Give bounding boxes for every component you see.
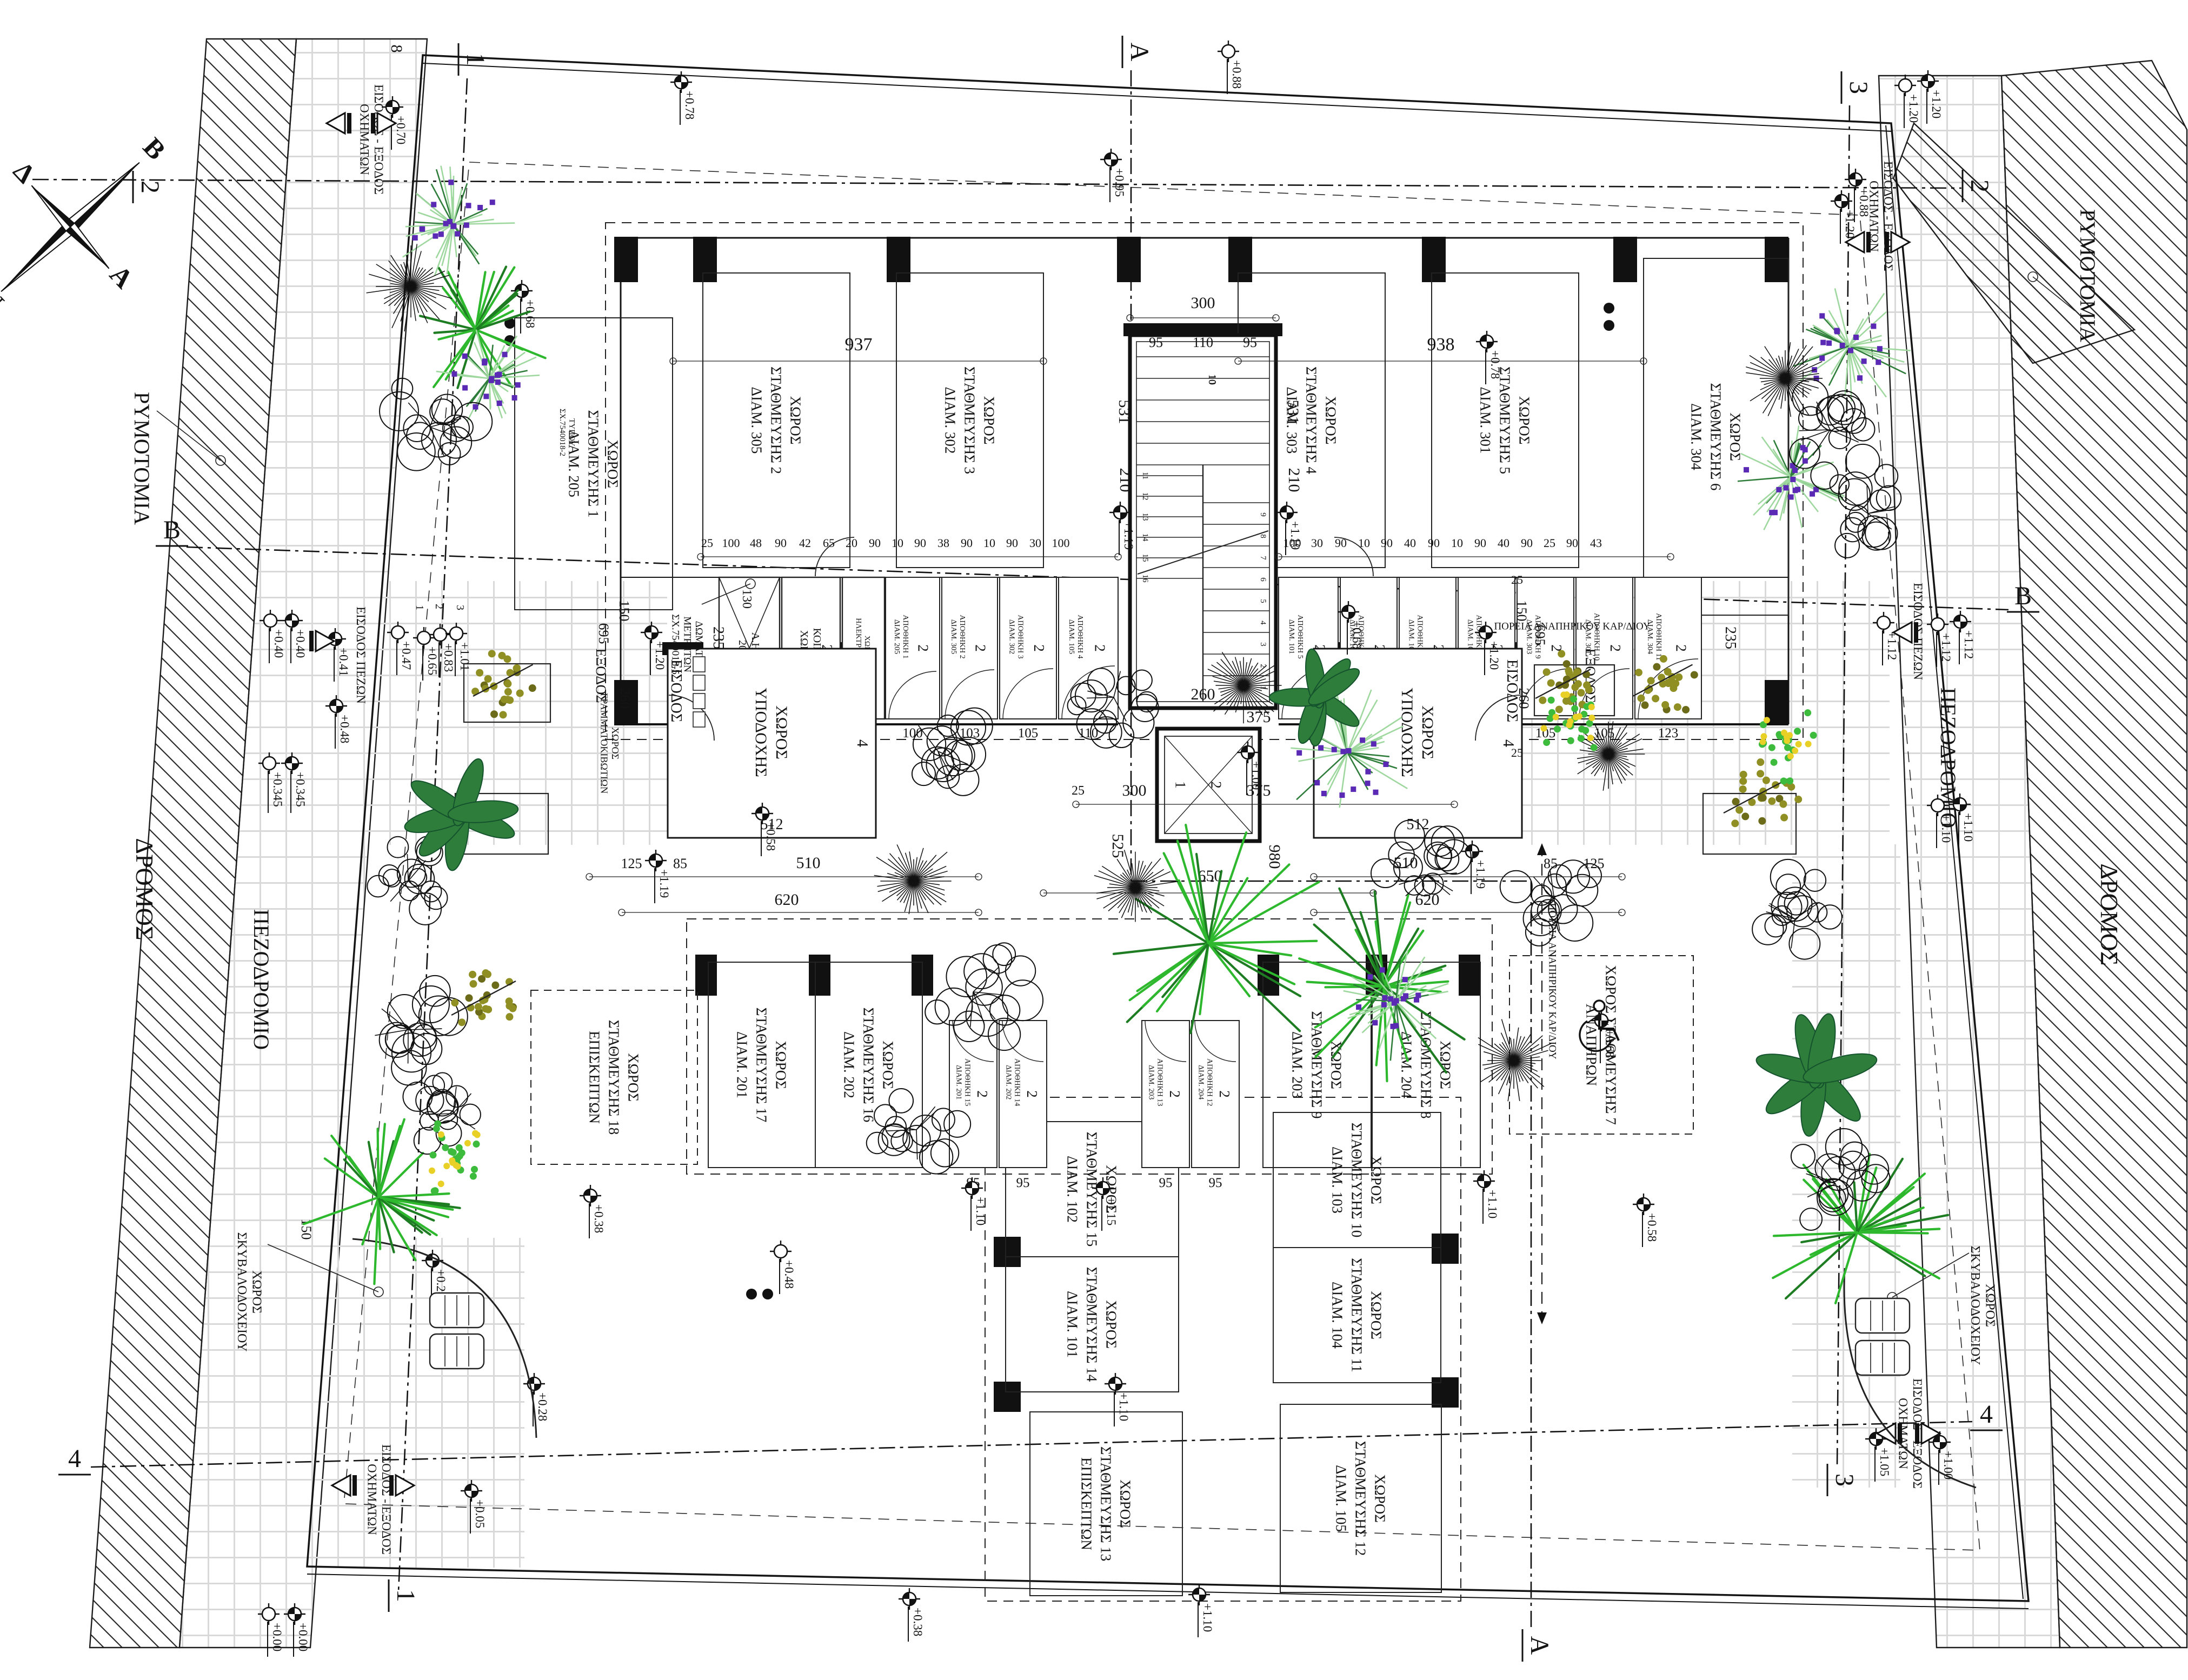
tree-canopy-blob (1123, 707, 1154, 738)
storage-label-line: ΔΙΑΜ. 204 (1197, 1065, 1205, 1099)
burst-ray (1764, 477, 1791, 530)
storage-depth: 2 (915, 644, 932, 652)
flower-dot (431, 202, 436, 207)
storage-label-line: ΔΙΑΜ. 202 (1005, 1065, 1013, 1099)
annotation-label: ΕΙΣΟΔΟΣ (668, 659, 684, 722)
storage-label-line: ΔΙΑΜ. 105 (1067, 619, 1075, 654)
garbage-bin-icon (430, 1334, 484, 1369)
wall-column (1459, 955, 1480, 996)
olive-dot (1647, 677, 1655, 684)
section-marker-2: 2 (1965, 179, 1994, 192)
storage-label: ΑΠΟΘΗΚΗ 15ΔΙΑΜ. 201 (955, 1058, 972, 1106)
level-value: +1.12 (1939, 633, 1953, 662)
flower-dot (1840, 343, 1845, 348)
yellow-dot (1792, 748, 1798, 754)
dim-text: 510 (796, 854, 821, 872)
level-value: +0.345 (271, 772, 284, 807)
green-dot (456, 1152, 463, 1159)
storage-label-line: ΑΠΟΘΗΚΗ 14 (1013, 1058, 1021, 1106)
dim-text: 375 (1247, 708, 1271, 726)
storage-label-line: ΑΠΟΘΗΚΗ 1 (901, 615, 909, 658)
flower-dot (1332, 747, 1337, 752)
level-value: +1.10 (1961, 813, 1975, 842)
tree-canopy-blob (430, 998, 468, 1036)
parking-stall-label-line: ΣΤΑΘΜΕΥΣΗΣ 17 (754, 1008, 770, 1123)
tree-star (1094, 850, 1178, 922)
flower-dot (451, 371, 457, 377)
olive-dot (1641, 702, 1649, 709)
storage-label: ΑΠΟΘΗΚΗ 11ΔΙΑΜ. 304 (1646, 613, 1662, 661)
annotation-text-line: ΔΡΟΜΟΣ (131, 838, 158, 940)
storage-depth-line: 2 (1216, 1090, 1233, 1098)
flower-dot (1382, 995, 1387, 1001)
spot-level: +0.88 (1218, 41, 1243, 94)
level-quadrant (675, 76, 681, 82)
burst-ray (1753, 477, 1791, 515)
dim-text: 90 (1521, 536, 1533, 550)
storage-label-line: ΔΙΑΜ. 302 (1008, 619, 1016, 654)
tree-branch (390, 881, 408, 902)
level-quadrant (1835, 195, 1841, 201)
section-marker-4: 4 (1980, 1400, 1993, 1429)
bollard-dot (746, 1289, 757, 1299)
parking-stall-label-line: ΕΠΙΣΚΕΠΤΩΝ (587, 1031, 603, 1124)
tree-canopy-blob (1405, 876, 1424, 895)
wall-column (614, 237, 638, 282)
annotation-text-line: ΟΧΗΜΑΤΩΝ (358, 104, 371, 175)
green-dot (470, 1172, 477, 1179)
flower-dot (477, 205, 483, 210)
flower-dot (1314, 780, 1320, 785)
dim-text: 695 (596, 623, 611, 644)
spot-level: +0.38 (580, 1185, 606, 1238)
parking-stall-label: ΧΩΡΟΣΣΤΑΘΜΕΥΣΗΣ 18ΕΠΙΣΚΕΠΤΩΝ (587, 1020, 642, 1135)
annotation-label: ΕΙΣΟΔΟΣ (1504, 659, 1520, 722)
parking-stall-label-line: ΣΤΑΘΜΕΥΣΗΣ 11 (1349, 1258, 1365, 1372)
annotation-text-line: ΠΕΖΟΔΡΟΜΙΟ (249, 909, 274, 1050)
green-dot (456, 1144, 463, 1151)
green-dot (1768, 744, 1775, 751)
parking-stall-label-line: ΕΠΙΣΚΕΠΤΩΝ (1079, 1457, 1095, 1550)
level-quadrant (1841, 201, 1848, 208)
palm-frond (1208, 882, 1319, 943)
level-quadrant (1849, 173, 1856, 179)
olive-dot (1583, 682, 1591, 689)
dim-text: 525 (1109, 834, 1127, 858)
green-dot (1567, 737, 1574, 744)
flower-dot (438, 231, 444, 237)
level-circle (1222, 45, 1235, 58)
olive-dot (1758, 817, 1766, 825)
level-value: +0.68 (1350, 621, 1364, 649)
parking-stall-label-line: ΔΙΑΜ. 304 (1688, 403, 1705, 470)
dim-text: 10 (892, 536, 903, 550)
parking-stall-6: ΧΩΡΟΣΣΤΑΘΜΕΥΣΗΣ 6ΔΙΑΜ. 304 (1644, 258, 1788, 615)
yellow-dot (1588, 704, 1595, 710)
level-label-group: +1.10 (1198, 1602, 1214, 1637)
palm-frond (457, 330, 476, 388)
parking-stall-label-line: ΔΙΑΜ. 103 (1329, 1146, 1346, 1214)
dim-text: 1 (414, 605, 425, 610)
storage-width: 95 (1209, 1176, 1222, 1190)
tree-canopy-blob (1817, 396, 1853, 431)
storage-outline (1635, 577, 1701, 719)
yellow-dot (1760, 733, 1767, 739)
flower-dot (1857, 375, 1863, 381)
tree-canopy-blob (397, 433, 435, 471)
level-label-group: +0.58 (1642, 1212, 1659, 1247)
tree-canopy-blob (983, 945, 1012, 974)
level-value: +0.83 (442, 643, 455, 672)
annotation-text-line: ΡΥΜΟΤΟΜΙΑ (130, 392, 154, 525)
parking-stall-label-line: ΧΩΡΟΣ (1323, 396, 1339, 445)
annotation-label: ΠΟΡΕΙΑ ΑΝΑΠΗΡΙΚΟΥ ΚΑΡ/ΔΙΟΥ (1494, 621, 1650, 632)
flower-dot (1848, 348, 1853, 353)
dim-text: 90 (961, 536, 973, 550)
shrub-ray (1514, 1061, 1544, 1086)
flower-dot (1826, 341, 1832, 346)
flower-dot (1834, 328, 1839, 333)
storage-depth-line: 2 (1031, 644, 1047, 652)
annotation-label: ΕΙΣΟΔΟΣ - ΕΞΟΔΟΣΟΧΗΜΑΤΩΝ (1867, 161, 1895, 271)
parking-stall-label-line: ΔΙΑΜ. 201 (734, 1031, 750, 1098)
reception-dim-h: 4 (854, 739, 870, 747)
storage-label: ΑΠΟΘΗΚΗ 3ΔΙΑΜ. 302 (1008, 615, 1025, 658)
dim-text: 90 (1474, 536, 1486, 550)
palm-frond (378, 1194, 449, 1197)
level-value: +1.20 (1487, 641, 1501, 670)
olive-dot (1768, 797, 1775, 805)
level-quadrant (1478, 1175, 1484, 1181)
level-value: +0.70 (394, 116, 408, 144)
parking-stall-label-line: ΔΙΑΜ. 203 (1289, 1031, 1306, 1098)
olive-dot (1741, 812, 1749, 820)
flower-dot (1340, 749, 1346, 754)
dim-text: 10 (1451, 536, 1463, 550)
annotation-text-line: ΤΥΠΟΥ (567, 418, 576, 446)
dim-text: 300 (1191, 294, 1215, 312)
parking-stall-2: ΧΩΡΟΣΣΤΑΘΜΕΥΣΗΣ 2ΔΙΑΜ. 305 (703, 273, 850, 568)
plot-boundary-offset (423, 63, 1891, 131)
yellow-dot (464, 1140, 471, 1146)
dim-text: 25 (1511, 573, 1523, 586)
olive-dot (465, 994, 473, 1002)
needle-s (1, 227, 75, 297)
olive-dot (1691, 671, 1698, 678)
parking-stall-label-line: ΧΩΡΟΣ (880, 1041, 896, 1089)
green-dot (1578, 735, 1585, 742)
dim-text: 980 (1266, 845, 1283, 869)
tree-purple (1738, 425, 1845, 530)
green-dot (1571, 705, 1578, 712)
storage-label-line: ΔΙΑΜ. 203 (1147, 1065, 1155, 1099)
tree-canopy-blob (1811, 462, 1838, 489)
level-value: +1.20 (1907, 94, 1920, 123)
flower-dot (1792, 468, 1798, 473)
parking-stall-label-line: ΧΩΡΟΣ (1118, 1479, 1134, 1528)
tree-canopy-blob (920, 1141, 953, 1174)
flower-dot (455, 231, 460, 237)
flower-dot (1321, 791, 1327, 796)
olive-dot (1664, 668, 1672, 676)
level-value: +1.05 (1878, 1448, 1891, 1476)
annotation-text-line: ΕΙΣΟΔΟΣ - ΕΞΟΔΟΣ (372, 84, 385, 195)
dim-text: 260 (617, 688, 633, 709)
flower-dot (1861, 358, 1867, 364)
flower-dot (1383, 762, 1388, 767)
green-dot (1780, 777, 1787, 784)
olive-dot (476, 669, 483, 677)
parking-stall-17: ΧΩΡΟΣΣΤΑΘΜΕΥΣΗΣ 17ΔΙΑΜ. 201 (708, 962, 815, 1168)
yellow-dot (443, 1163, 450, 1169)
bollard-dot (1604, 320, 1614, 331)
flower-dot (1318, 745, 1324, 751)
dim-text: 235 (1722, 626, 1739, 649)
green-dot (432, 1187, 439, 1194)
dim-text: 43 (1590, 536, 1602, 550)
tree-canopy-blob (1840, 518, 1864, 542)
level-value: +1.20 (653, 641, 667, 670)
olive-dot (1558, 650, 1565, 658)
annotation-text: ΡΥΜΟΤΟΜΙΑ (130, 392, 154, 525)
level-value: +0.38 (911, 1608, 925, 1636)
yellow-dot (1764, 717, 1770, 723)
flower-dot (420, 226, 425, 232)
level-quadrant (1856, 179, 1862, 186)
parking-stall-outline (1509, 956, 1693, 1134)
flower-dot (1372, 1020, 1378, 1025)
section-marker-4: 4 (68, 1444, 81, 1473)
storage-label-line: ΑΠΟΘΗΚΗ 13 (1156, 1058, 1164, 1106)
level-value: +0.41 (337, 648, 350, 676)
olive-dot (1652, 695, 1659, 702)
olive-dot (491, 982, 499, 989)
level-value: +1.19 (1288, 521, 1302, 550)
green-dot (430, 1151, 437, 1158)
spot-level: +0.58 (1633, 1194, 1659, 1247)
upper-floor-overhang-dashed (985, 1097, 1461, 1601)
yellow-dot (449, 1157, 455, 1164)
elevator-shaft: 12 (1157, 729, 1260, 841)
mailbox-unit (693, 694, 705, 709)
storage-width: 123 (1658, 726, 1679, 741)
parking-stall-label: ΧΩΡΟΣΣΤΑΘΜΕΥΣΗΣ 11ΔΙΑΜ. 104 (1329, 1258, 1385, 1372)
level-quadrant (649, 854, 656, 861)
olive-dot (475, 1003, 482, 1010)
elevator-dim-line: 1 (1173, 781, 1189, 789)
level-value: +0.40 (294, 629, 307, 658)
tree-palm (1114, 825, 1319, 1033)
parking-stall-11: ΧΩΡΟΣΣΤΑΘΜΕΥΣΗΣ 11ΔΙΑΜ. 104 (1273, 1248, 1441, 1383)
level-quadrant (522, 291, 528, 297)
dim-text: 85 (673, 856, 687, 871)
spot-level: +1.10 (961, 1177, 987, 1231)
dim-text: 150 (616, 601, 632, 622)
storage-label-line: ΔΙΑΜ. 305 (949, 619, 957, 654)
elevator-dim: 2 (1208, 781, 1225, 789)
olive-dot (451, 999, 458, 1006)
storage-room: ΑΠΟΘΗΚΗ 4ΔΙΑΜ. 1052110 (1059, 577, 1118, 741)
olive-dot (1565, 667, 1572, 675)
yellow-dot (1567, 718, 1574, 725)
needle-e (66, 227, 109, 272)
olive-dot (1759, 794, 1767, 802)
dim-text: 95 (1149, 335, 1163, 350)
dim-text: 10 (983, 536, 995, 550)
yellow-dot (1576, 713, 1582, 719)
parking-stall-5: ΧΩΡΟΣΣΤΑΘΜΕΥΣΗΣ 5ΔΙΑΜ. 301 (1432, 273, 1579, 568)
dim-text: 38 (937, 536, 949, 550)
annotation-text: ΡΥΜΟΤΟΜΙΑ (2076, 209, 2100, 342)
garbage-bin-icon (430, 1293, 484, 1328)
tree-branch (453, 1114, 475, 1129)
level-label-group: +0.38 (908, 1606, 925, 1642)
yellow-dot (438, 1181, 444, 1187)
flower-dot (1373, 790, 1378, 795)
wall-column (1117, 237, 1141, 282)
wall-column (809, 955, 830, 996)
parking-stall-label-line: ΧΩΡΟΣ (1368, 1156, 1385, 1204)
dim-text: 40 (1498, 536, 1509, 550)
flower-dot (495, 379, 501, 385)
tree-canopy-blob (1544, 874, 1566, 896)
level-value: +0.88 (1230, 60, 1243, 89)
storage-depth-line: 2 (1024, 1090, 1040, 1098)
storage-label-line: ΑΠΟΘΗΚΗ 15 (963, 1058, 972, 1106)
wall-column (887, 237, 910, 282)
yellow-dot (1805, 741, 1812, 747)
olive-dot (1682, 706, 1690, 714)
flower-dot (462, 385, 468, 391)
olive-dot (458, 1018, 465, 1026)
dim-text: 125 (621, 856, 642, 871)
compass-letter-east: Α (104, 259, 139, 294)
parking-stall-label-line: ΔΙΑΜ. 302 (942, 387, 959, 454)
annotation-text-line: ΠΟΡΕΙΑ ΑΝΑΠΗΡΙΚΟΥ ΚΑΡ/ΔΙΟΥ (1494, 621, 1650, 632)
wall-column (695, 955, 717, 996)
yellow-dot (1540, 725, 1547, 731)
storage-width: 105 (1018, 726, 1039, 741)
storage-depth: 2 (1607, 644, 1624, 652)
flower-dot (1356, 1004, 1361, 1010)
parking-stall-label: ΧΩΡΟΣΣΤΑΘΜΕΥΣΗΣ 6ΔΙΑΜ. 304 (1688, 383, 1744, 490)
parking-stall-label-line: ΧΩΡΟΣ (1328, 1041, 1345, 1089)
flower-dot (1819, 313, 1825, 318)
annotation-text: ΕΙΣΟΔΟΣ ΠΕΖΩΝ (354, 606, 368, 704)
annotation-text-line: ΕΙΣΟΔΟΣ - ΕΞΟΔΟΣ (380, 1444, 393, 1555)
storage-depth-line: 2 (974, 1090, 990, 1098)
yellow-dot (1587, 735, 1594, 741)
tree-branch (1845, 497, 1868, 514)
tree-canopy-blob (411, 1034, 442, 1064)
dim-text: 531 (1115, 400, 1133, 424)
level-value: +0.78 (1488, 350, 1502, 379)
tree-coral (375, 976, 467, 1085)
olive-dot (504, 688, 512, 696)
tree-canopy-blob (912, 762, 935, 785)
level-quadrant (1472, 851, 1479, 858)
tree-canopy-blob (367, 876, 389, 897)
level-value: +1.00 (1249, 761, 1263, 790)
level-circle (391, 626, 404, 639)
level-quadrant (1199, 1595, 1206, 1601)
olive-dot (1740, 771, 1747, 778)
section-marker-A: A (1525, 1636, 1554, 1655)
flower-dot (1810, 491, 1815, 497)
level-quadrant (534, 1384, 541, 1390)
path-arrowhead (1537, 843, 1547, 855)
tree-branch (973, 992, 995, 1019)
level-value: +1.10 (1201, 1603, 1214, 1632)
storage-room: ΑΠΟΘΗΚΗ 11ΔΙΑΜ. 3042123 (1635, 577, 1701, 741)
olive-dot (1735, 806, 1743, 814)
burst-ray (1799, 346, 1849, 381)
stair-step-number: 16 (1141, 575, 1149, 583)
parking-stall-label-line: ΣΤΑΘΜΕΥΣΗΣ 8 (1418, 1011, 1434, 1118)
spot-level: +1.19 (1461, 841, 1487, 894)
flower-dot (1402, 977, 1408, 982)
garbage-bin-icon (1856, 1298, 1910, 1333)
yellow-dot (455, 1163, 461, 1170)
parking-stall-3: ΧΩΡΟΣΣΤΑΘΜΕΥΣΗΣ 3ΔΙΑΜ. 302 (896, 273, 1043, 568)
tree-canopy-blob (925, 1000, 949, 1024)
stair-core (1130, 335, 1276, 708)
parking-stall-label-line: ΣΤΑΘΜΕΥΣΗΣ 6 (1708, 383, 1724, 490)
annotation-text-line: ΣΧ.7540018-2 (558, 409, 567, 456)
parking-stall-label-line: ΧΩΡΟΣ (773, 1041, 789, 1089)
wall-column (693, 237, 717, 282)
level-value: +0.65 (425, 646, 439, 675)
olive-dot (482, 969, 489, 977)
annotation-text-line: ΕΙΣΟΔΟΣ (668, 659, 684, 722)
burst-ray (453, 224, 479, 264)
palm-frond (1208, 941, 1316, 943)
parking-stall-label-line: ΔΙΑΜ. 301 (1478, 387, 1494, 454)
yellow-dot (1786, 732, 1793, 738)
level-label-group: +1.10 (1483, 1189, 1499, 1224)
level-quadrant (1280, 506, 1287, 512)
wall-column (1613, 237, 1637, 282)
dim-text: 620 (775, 891, 799, 909)
dim-text: 90 (1381, 536, 1393, 550)
flower-dot (1876, 359, 1881, 365)
storage-width: 95 (1016, 1176, 1030, 1190)
mailbox-unit (693, 712, 705, 727)
reception-dim-h-line: 4 (854, 739, 870, 747)
dim-text: 90 (914, 536, 926, 550)
flower-dot (1351, 786, 1356, 792)
dim-text: 210 (1116, 468, 1134, 492)
parking-stall-label-line: ΣΤΑΘΜΕΥΣΗΣ 10 (1349, 1123, 1365, 1238)
level-quadrant (590, 1196, 597, 1202)
annotation-text-line: ΓΡΑΜΜΑΤΟΚΙΒΩΤΙΩΝ (598, 693, 609, 794)
dim-text: 25 (1511, 746, 1523, 759)
level-quadrant (1114, 506, 1120, 512)
olive-dot (501, 696, 508, 703)
tree-branch (916, 1130, 917, 1159)
level-circle (434, 628, 447, 641)
spot-level: +0.95 (1100, 149, 1126, 202)
level-value: +1.20 (1843, 210, 1857, 238)
green-dot (1570, 696, 1577, 703)
green-dot (1578, 725, 1585, 732)
storage-label-line: ΑΠΟΘΗΚΗ 5 (1296, 615, 1304, 658)
olive-dot (500, 711, 507, 718)
annotation-text-line: ΧΩΡΟΣ (610, 727, 621, 759)
spot-level: +1.19 (1276, 502, 1302, 555)
parking-stall-label-line: ΔΙΑΜ. 305 (749, 387, 765, 454)
olive-dot (1635, 669, 1642, 676)
